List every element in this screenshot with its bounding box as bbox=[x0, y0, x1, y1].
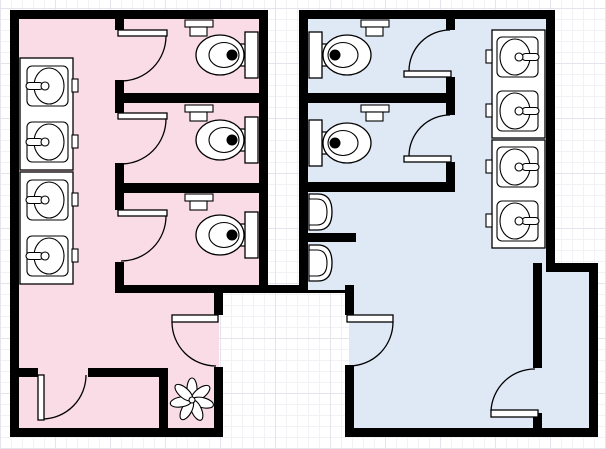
soap-dispenser bbox=[72, 249, 78, 262]
toilet bbox=[309, 120, 371, 166]
toilet bbox=[309, 32, 371, 78]
floor-plan bbox=[0, 0, 606, 449]
soap-dispenser bbox=[486, 104, 492, 117]
soap-dispenser bbox=[72, 135, 78, 148]
soap-dispenser bbox=[486, 214, 492, 227]
urinal bbox=[309, 194, 332, 230]
toilet bbox=[196, 32, 258, 78]
floor-plan-canvas bbox=[0, 0, 606, 449]
mens-restroom bbox=[299, 10, 598, 437]
soap-dispenser bbox=[486, 50, 492, 63]
toilet bbox=[196, 117, 258, 163]
toilet bbox=[196, 212, 258, 258]
soap-dispenser bbox=[486, 160, 492, 173]
soap-dispenser bbox=[72, 193, 78, 206]
soap-dispenser bbox=[72, 79, 78, 92]
urinal bbox=[309, 245, 332, 281]
